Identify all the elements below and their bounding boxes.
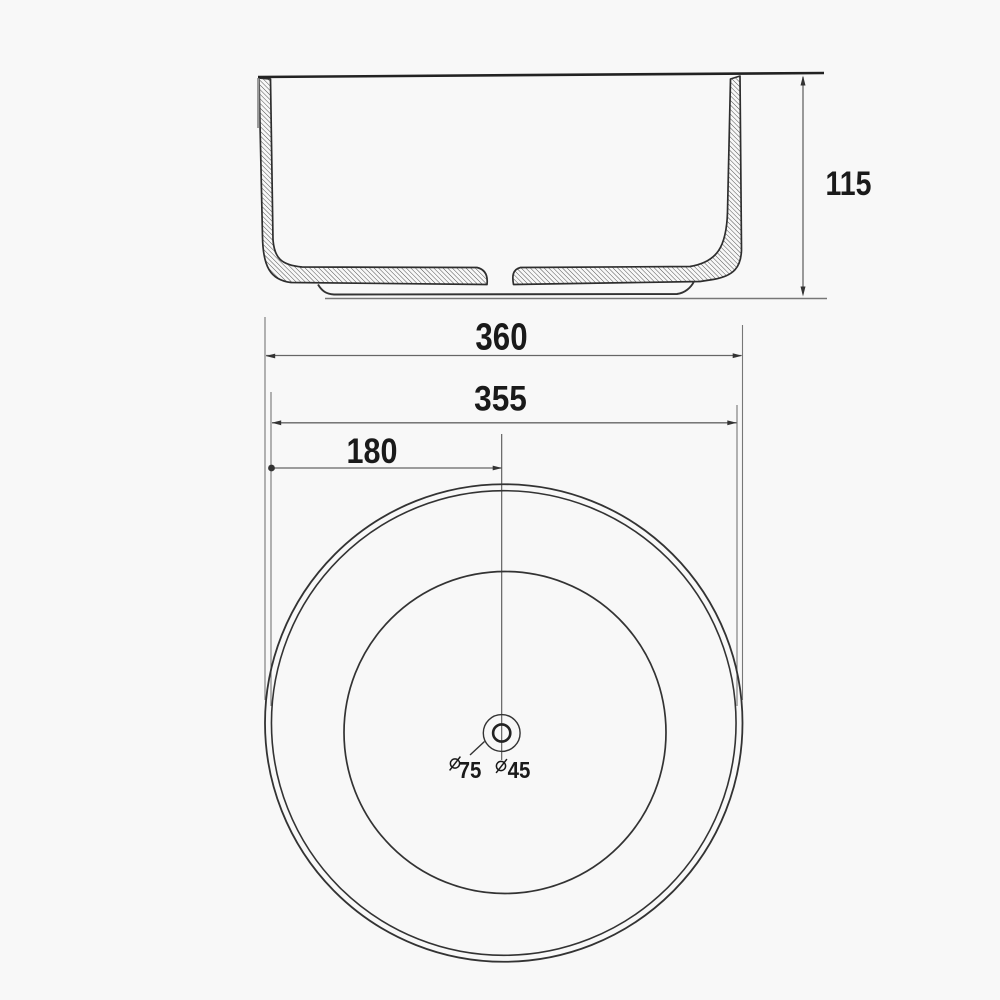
svg-text:180: 180 — [347, 432, 398, 472]
svg-text:115: 115 — [826, 165, 872, 203]
svg-text:360: 360 — [475, 317, 527, 358]
svg-text:45: 45 — [508, 757, 531, 784]
svg-text:355: 355 — [474, 380, 527, 419]
svg-text:75: 75 — [459, 757, 482, 784]
